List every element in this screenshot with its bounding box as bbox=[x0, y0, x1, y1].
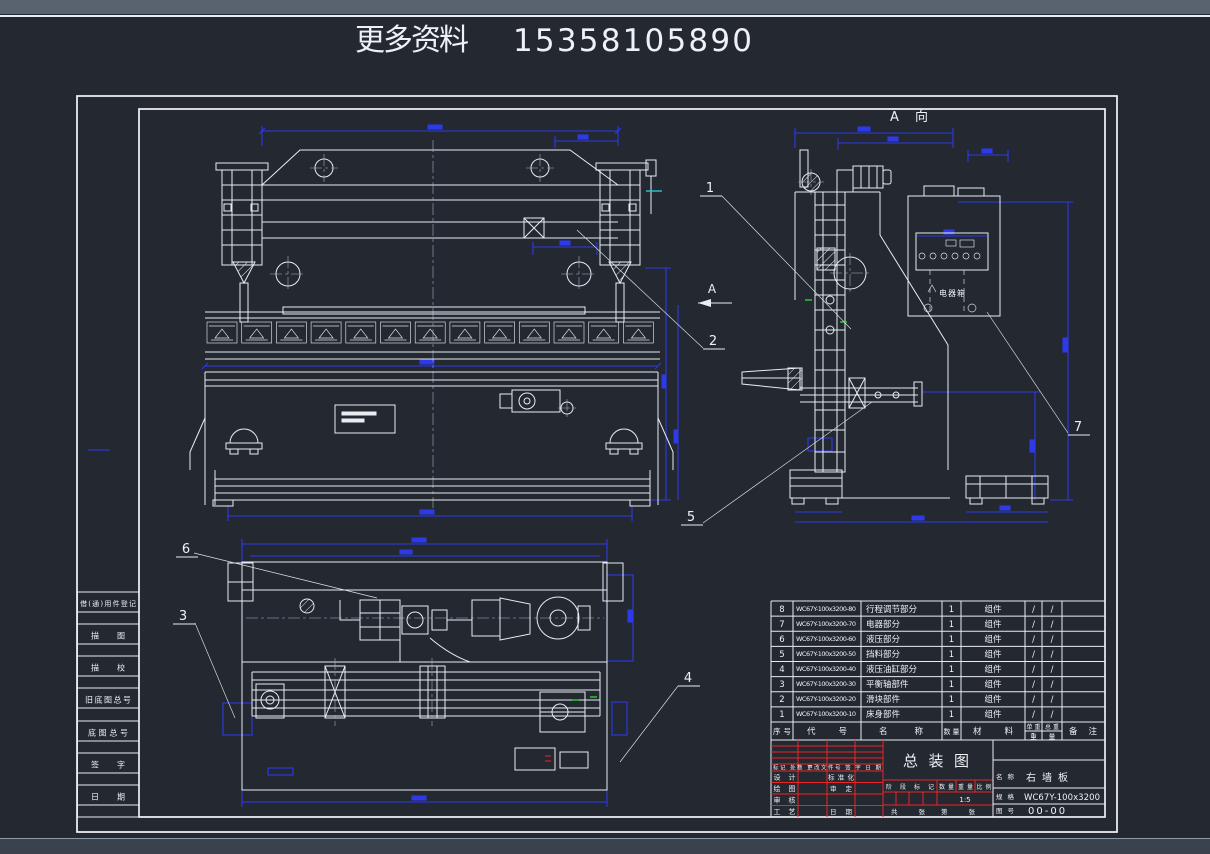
front-view-dimensions bbox=[88, 125, 678, 521]
red-marks bbox=[545, 756, 551, 761]
row-unit-weight: / bbox=[1032, 710, 1035, 720]
margin-label: 签 字 bbox=[91, 760, 125, 770]
balloon-6: 6 bbox=[182, 542, 190, 557]
balloon-2: 2 bbox=[709, 334, 717, 349]
row-qty: 1 bbox=[949, 620, 954, 630]
sheet-total: 共 张 bbox=[891, 807, 926, 816]
qty-label: 数量 bbox=[939, 783, 954, 791]
row-seq: 1 bbox=[779, 710, 784, 720]
row-qty: 1 bbox=[949, 695, 954, 705]
row-name: 液压油缸部分 bbox=[866, 664, 918, 675]
section-arrow-label: A bbox=[708, 282, 717, 296]
weight-label: 重量 bbox=[958, 783, 973, 791]
dwg-no-value: 00-00 bbox=[1028, 806, 1067, 817]
col-header-code: 代 号 bbox=[807, 726, 847, 737]
die-segments bbox=[207, 322, 653, 343]
row-seq: 6 bbox=[779, 635, 784, 645]
sheet-number: 第 张 bbox=[941, 807, 976, 816]
role-design: 设计 bbox=[774, 773, 796, 782]
row-unit-weight: / bbox=[1032, 680, 1035, 690]
plan-view bbox=[194, 538, 678, 807]
col-header-weight-1: 重 bbox=[1030, 733, 1037, 741]
balloon-7: 7 bbox=[1074, 420, 1082, 435]
margin-label: 日 期 bbox=[91, 793, 125, 802]
section-arrow: A bbox=[698, 282, 732, 307]
name-label: 名称 bbox=[996, 772, 1015, 781]
col-header-seq: 序号 bbox=[773, 726, 791, 736]
promo-header: 更多资料 15358105890 bbox=[355, 23, 755, 59]
row-total-weight: / bbox=[1051, 605, 1054, 615]
col-header-qty: 数量 bbox=[944, 727, 960, 736]
balloon-1: 1 bbox=[706, 181, 714, 196]
row-qty: 1 bbox=[949, 665, 954, 675]
row-unit-weight: / bbox=[1032, 635, 1035, 645]
row-material: 组件 bbox=[984, 604, 1002, 615]
margin-label: 描 图 bbox=[91, 631, 125, 641]
balloon-3: 3 bbox=[179, 609, 187, 624]
row-qty: 1 bbox=[949, 680, 954, 690]
row-seq: 2 bbox=[779, 695, 784, 705]
cad-viewport: 更多资料 15358105890 借(通)用件登记 描 图 描 校 旧底图总号 … bbox=[0, 0, 1210, 854]
row-seq: 7 bbox=[779, 620, 784, 630]
row-unit-weight: / bbox=[1032, 650, 1035, 660]
row-material: 组件 bbox=[984, 679, 1002, 690]
name-value: 右墙板 bbox=[1026, 771, 1068, 784]
side-view-label: A 向 bbox=[890, 109, 934, 125]
row-qty: 1 bbox=[949, 650, 954, 660]
front-view bbox=[88, 125, 703, 521]
row-qty: 1 bbox=[949, 635, 954, 645]
role-approve: 审定 bbox=[830, 784, 853, 793]
side-view-geometry bbox=[742, 150, 1048, 504]
stage-label: 阶 段 标 记 bbox=[886, 783, 934, 791]
role-draft: 绘图 bbox=[774, 784, 796, 793]
row-material: 组件 bbox=[984, 709, 1002, 720]
balloon-4: 4 bbox=[684, 671, 692, 686]
title-block: 标记 处数 更改文件号 签 字 日 期 设计 绘图 审核 工艺 标准化 审定 日… bbox=[771, 740, 1105, 817]
side-view: A 向 bbox=[698, 109, 1073, 522]
row-code: WC67Y-100x3200-30 bbox=[796, 680, 856, 688]
row-code: WC67Y-100x3200-70 bbox=[796, 620, 856, 628]
row-seq: 3 bbox=[779, 680, 784, 690]
spec-value: WC67Y-100x3200 bbox=[1024, 793, 1100, 803]
parts-table: 8WC67Y-100x3200-80行程调节部分1组件// 7WC67Y-100… bbox=[771, 601, 1105, 741]
margin-label-column: 借(通)用件登记 描 图 描 校 旧底图总号 底图总号 日 期 签 字 bbox=[78, 592, 140, 817]
promo-text: 更多资料 bbox=[355, 23, 471, 58]
row-seq: 5 bbox=[779, 650, 784, 660]
row-material: 组件 bbox=[984, 649, 1002, 660]
drawing-canvas: 更多资料 15358105890 借(通)用件登记 描 图 描 校 旧底图总号 … bbox=[0, 0, 1210, 854]
plan-view-geometry bbox=[194, 553, 678, 790]
row-code: WC67Y-100x3200-80 bbox=[796, 605, 856, 613]
role-check: 审核 bbox=[774, 796, 796, 805]
dwg-no-label: 图号 bbox=[996, 807, 1015, 815]
margin-label: 旧底图总号 bbox=[85, 695, 131, 705]
row-material: 组件 bbox=[984, 634, 1002, 645]
row-name: 电器部分 bbox=[866, 619, 901, 630]
row-seq: 4 bbox=[779, 665, 784, 675]
row-name: 挡料部分 bbox=[866, 649, 901, 660]
cabinet-label: 电器箱 bbox=[939, 288, 965, 298]
row-code: WC67Y-100x3200-20 bbox=[796, 695, 856, 703]
col-header-name: 名 称 bbox=[879, 726, 923, 737]
row-total-weight: / bbox=[1051, 650, 1054, 660]
row-code: WC67Y-100x3200-50 bbox=[796, 650, 856, 658]
col-header-remark: 备 注 bbox=[1069, 726, 1097, 737]
row-material: 组件 bbox=[984, 664, 1002, 675]
row-material: 组件 bbox=[984, 694, 1002, 705]
row-total-weight: / bbox=[1051, 680, 1054, 690]
role-date: 日期 bbox=[830, 808, 853, 816]
row-code: WC67Y-100x3200-10 bbox=[796, 710, 856, 718]
front-view-geometry bbox=[190, 140, 703, 508]
row-code: WC67Y-100x3200-60 bbox=[796, 635, 856, 643]
drawing-title: 总装图 bbox=[903, 752, 973, 770]
row-qty: 1 bbox=[949, 605, 954, 615]
spec-label: 规格 bbox=[996, 792, 1015, 801]
row-name: 平衡轴部件 bbox=[866, 679, 909, 690]
row-unit-weight: / bbox=[1032, 695, 1035, 705]
row-total-weight: / bbox=[1051, 620, 1054, 630]
row-name: 液压部分 bbox=[866, 634, 901, 645]
balloon-5: 5 bbox=[687, 510, 695, 525]
row-total-weight: / bbox=[1051, 695, 1054, 705]
promo-phone: 15358105890 bbox=[513, 23, 755, 59]
row-total-weight: / bbox=[1051, 710, 1054, 720]
electrical-cabinet: 电器箱 bbox=[908, 186, 1000, 316]
row-total-weight: / bbox=[1051, 665, 1054, 675]
col-header-unit-weight: 单重 bbox=[1027, 723, 1041, 731]
col-header-material: 材 料 bbox=[973, 726, 1013, 737]
row-material: 组件 bbox=[984, 619, 1002, 630]
scale-label: 比例 bbox=[977, 783, 992, 791]
row-qty: 1 bbox=[949, 710, 954, 720]
row-unit-weight: / bbox=[1032, 605, 1035, 615]
row-total-weight: / bbox=[1051, 635, 1054, 645]
row-name: 滑块部件 bbox=[866, 694, 901, 705]
margin-label: 底图总号 bbox=[88, 728, 128, 738]
margin-label: 借(通)用件登记 bbox=[80, 599, 136, 608]
row-seq: 8 bbox=[779, 605, 784, 615]
row-name: 床身部件 bbox=[866, 709, 901, 720]
col-header-weight-2: 量 bbox=[1049, 733, 1056, 741]
col-header-total-weight: 总重 bbox=[1045, 723, 1059, 731]
role-standardize: 标准化 bbox=[828, 773, 855, 782]
row-unit-weight: / bbox=[1032, 665, 1035, 675]
revision-header: 标记 处数 更改文件号 签 字 日 期 bbox=[773, 764, 881, 772]
role-process: 工艺 bbox=[774, 808, 796, 816]
margin-label: 描 校 bbox=[91, 663, 125, 673]
row-code: WC67Y-100x3200-40 bbox=[796, 665, 856, 673]
scale-value: 1:5 bbox=[959, 796, 970, 804]
row-name: 行程调节部分 bbox=[866, 604, 918, 615]
row-unit-weight: / bbox=[1032, 620, 1035, 630]
